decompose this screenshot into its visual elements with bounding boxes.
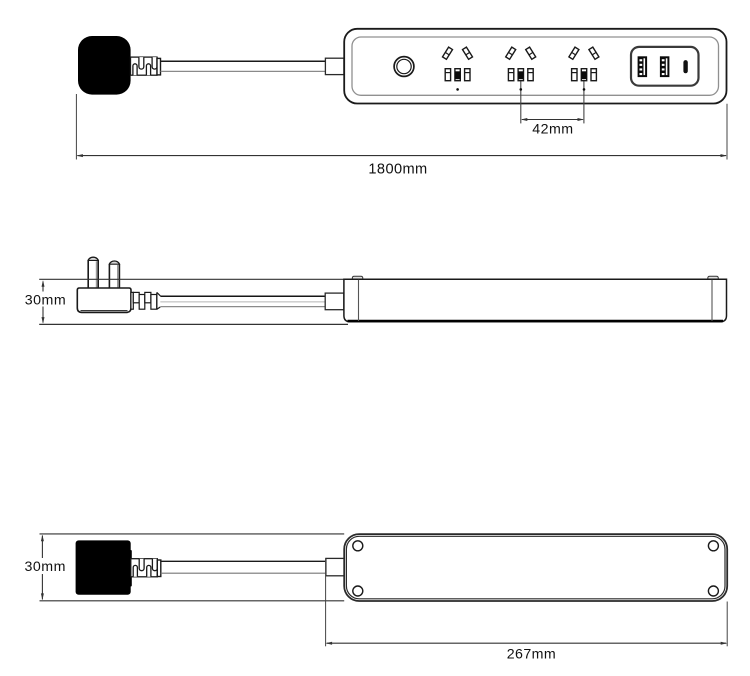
svg-text:42mm: 42mm [532,121,573,137]
svg-text:267mm: 267mm [507,646,556,662]
svg-text:30mm: 30mm [24,559,65,575]
svg-text:30mm: 30mm [25,293,66,309]
svg-text:1800mm: 1800mm [368,162,427,178]
